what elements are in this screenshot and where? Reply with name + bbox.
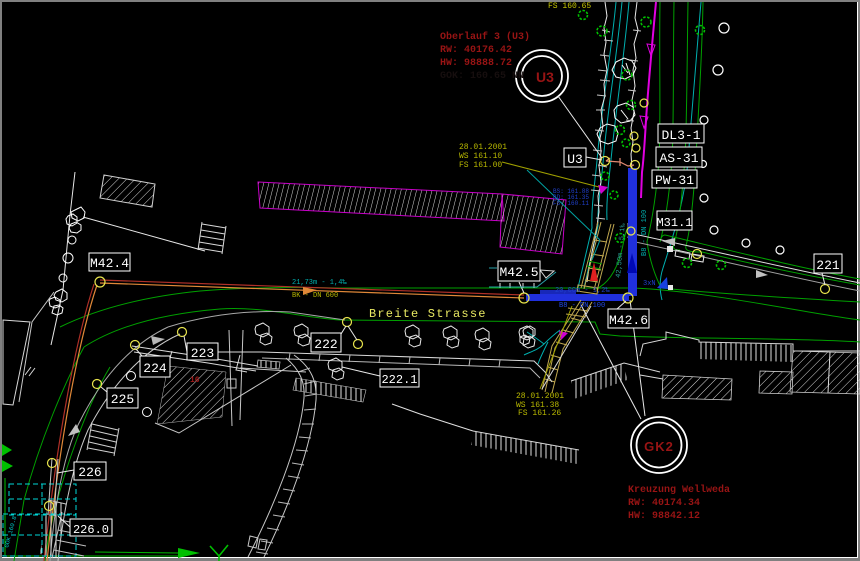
svg-text:M31.1: M31.1 — [656, 216, 692, 230]
svg-text:RW: 40176.42: RW: 40176.42 — [440, 45, 512, 56]
svg-text:RW: 40174.34: RW: 40174.34 — [628, 498, 700, 509]
svg-text:28.01.2001: 28.01.2001 — [516, 392, 564, 401]
svg-text:HW: 98842.12: HW: 98842.12 — [628, 511, 700, 522]
svg-text:223: 223 — [191, 346, 214, 361]
svg-text:FS: 160.11: FS: 160.11 — [553, 200, 589, 207]
svg-text:Kreuzung Wellweda: Kreuzung Wellweda — [628, 484, 730, 496]
svg-text:28.01.2001: 28.01.2001 — [459, 143, 507, 152]
svg-text:WS 161.10: WS 161.10 — [459, 152, 502, 161]
svg-text:3xN: 3xN — [643, 280, 656, 288]
svg-text:DL3-1: DL3-1 — [661, 128, 700, 143]
svg-text:B8 - DN 100: B8 - DN 100 — [559, 302, 605, 310]
svg-text:222: 222 — [314, 337, 337, 352]
svg-text:FS 160.65: FS 160.65 — [548, 2, 591, 11]
svg-text:M42.4: M42.4 — [90, 256, 129, 271]
svg-text:GOK: 160.65 NN: GOK: 160.65 NN — [440, 71, 524, 82]
svg-text:221: 221 — [816, 258, 840, 273]
svg-text:225: 225 — [111, 392, 134, 407]
svg-text:BK - DN 600: BK - DN 600 — [292, 292, 338, 300]
svg-text:AS-31: AS-31 — [659, 151, 698, 166]
svg-text:PW-31: PW-31 — [655, 173, 694, 188]
svg-text:20,00m - 1,2‰: 20,00m - 1,2‰ — [555, 287, 610, 295]
svg-text:21,73m - 1,4‰: 21,73m - 1,4‰ — [292, 279, 347, 287]
svg-text:HW: 98888.72: HW: 98888.72 — [440, 58, 512, 69]
svg-text:M42.5: M42.5 — [499, 265, 538, 280]
svg-text:224: 224 — [143, 361, 167, 376]
svg-text:GK2: GK2 — [644, 439, 674, 454]
svg-text:B8 - DN 100: B8 - DN 100 — [641, 210, 649, 256]
svg-text:U3: U3 — [567, 152, 583, 167]
svg-text:Breite Strasse: Breite Strasse — [369, 307, 487, 321]
svg-text:16: 16 — [190, 376, 200, 385]
svg-text:FS 161.00: FS 161.00 — [459, 161, 502, 170]
svg-text:M42.6: M42.6 — [609, 313, 648, 328]
svg-text:Oberlauf 3 (U3): Oberlauf 3 (U3) — [440, 31, 530, 43]
svg-text:U3: U3 — [536, 69, 554, 85]
svg-text:226.0: 226.0 — [73, 523, 109, 537]
svg-text:FS 161.26: FS 161.26 — [518, 409, 561, 418]
svg-text:222.1: 222.1 — [381, 373, 417, 387]
svg-text:226: 226 — [78, 465, 101, 480]
